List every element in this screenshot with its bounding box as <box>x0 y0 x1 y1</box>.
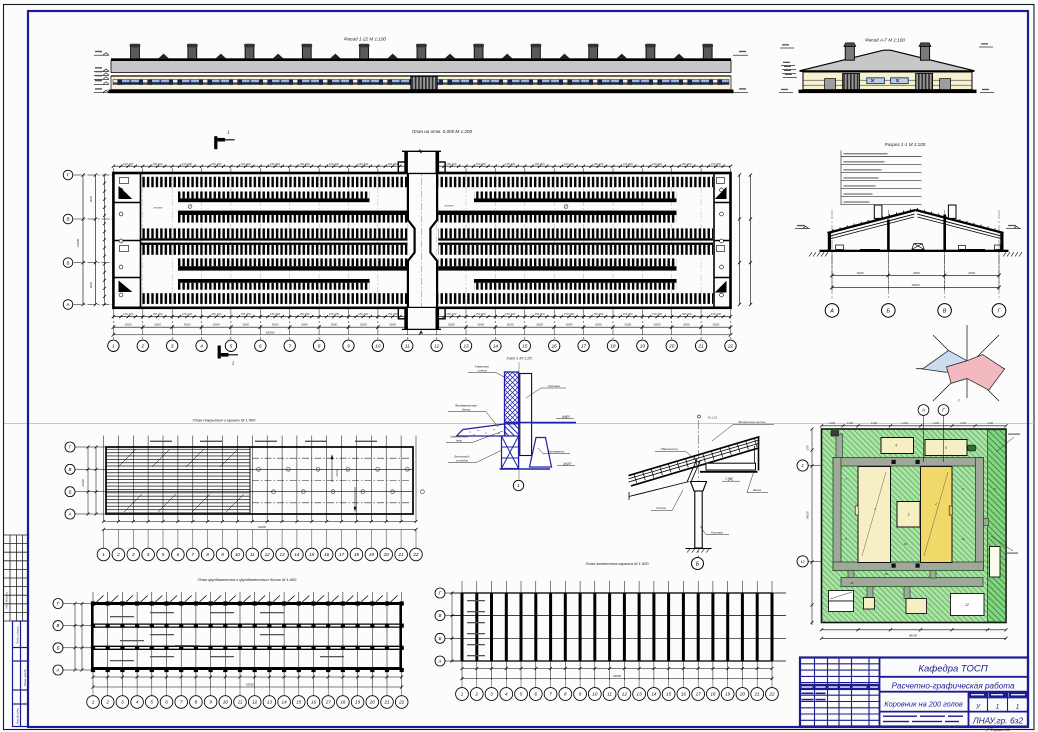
svg-text:13: 13 <box>279 552 285 557</box>
svg-text:3000: 3000 <box>242 323 249 327</box>
svg-text:8: 8 <box>564 692 567 697</box>
svg-text:9: 9 <box>579 692 582 697</box>
svg-text:8: 8 <box>206 552 209 557</box>
svg-text:15: 15 <box>309 552 315 557</box>
svg-text:12: 12 <box>434 343 440 348</box>
svg-text:4: 4 <box>505 692 508 697</box>
svg-text:План элементов каркаса М 1:500: План элементов каркаса М 1:500 <box>585 561 649 566</box>
svg-text:Узел 1 М 1:20: Узел 1 М 1:20 <box>506 356 532 361</box>
svg-text:6: 6 <box>535 692 538 697</box>
svg-text:150 300: 150 300 <box>123 162 134 166</box>
svg-text:5: 5 <box>162 552 165 557</box>
svg-text:19: 19 <box>369 552 375 557</box>
svg-text:4: 4 <box>895 444 897 448</box>
svg-text:16: 16 <box>681 692 687 697</box>
svg-text:14: 14 <box>493 343 499 348</box>
svg-text:10: 10 <box>961 537 965 541</box>
svg-text:Подп. и дата: Подп. и дата <box>16 626 20 644</box>
svg-text:150 300: 150 300 <box>211 162 222 166</box>
svg-text:15: 15 <box>296 700 302 705</box>
svg-text:Инв.№ дубл.: Инв.№ дубл. <box>16 707 20 724</box>
svg-text:63000: 63000 <box>246 682 254 686</box>
svg-text:ЛНАУ,гр. 6з2: ЛНАУ,гр. 6з2 <box>972 716 1024 726</box>
svg-text:63000: 63000 <box>258 525 266 529</box>
svg-text:150 300: 150 300 <box>711 312 722 316</box>
svg-text:150 300: 150 300 <box>593 312 604 316</box>
svg-text:4: 4 <box>200 343 203 348</box>
svg-text:План покрытия и кровли М 1:400: План покрытия и кровли М 1:400 <box>193 418 256 423</box>
svg-text:7: 7 <box>549 692 552 697</box>
svg-text:Б: Б <box>57 645 60 650</box>
svg-text:18: 18 <box>340 700 346 705</box>
svg-text:15: 15 <box>666 692 672 697</box>
svg-text:14: 14 <box>651 692 657 697</box>
svg-text:22: 22 <box>398 700 405 705</box>
svg-text:11: 11 <box>607 692 612 697</box>
svg-text:Инв.№подл.: Инв.№подл. <box>5 591 9 608</box>
svg-text:21000: 21000 <box>76 238 80 248</box>
svg-text:11: 11 <box>250 552 255 557</box>
svg-text:А: А <box>921 408 925 413</box>
svg-text:3: 3 <box>132 552 135 557</box>
svg-text:4: 4 <box>136 700 139 705</box>
svg-text:План фундаментов и фундаментны: План фундаментов и фундаментных балок М … <box>198 577 298 582</box>
svg-text:6: 6 <box>259 343 262 348</box>
svg-text:Фундамент: Фундамент <box>548 450 565 454</box>
svg-text:150 300: 150 300 <box>623 312 634 316</box>
svg-text:1: 1 <box>227 130 229 135</box>
svg-text:22: 22 <box>412 552 419 557</box>
svg-text:19: 19 <box>640 343 646 348</box>
svg-text:11: 11 <box>850 581 853 585</box>
svg-text:150 300: 150 300 <box>241 312 252 316</box>
svg-text:3000: 3000 <box>448 323 455 327</box>
svg-text:150 300: 150 300 <box>593 162 604 166</box>
svg-text:Кафедра ТОСП: Кафедра ТОСП <box>918 664 987 675</box>
svg-text:3000: 3000 <box>712 323 719 327</box>
svg-text:16: 16 <box>311 700 317 705</box>
svg-text:балка: балка <box>753 488 761 492</box>
svg-text:11: 11 <box>405 343 410 348</box>
svg-text:1: 1 <box>112 343 115 348</box>
svg-text:9: 9 <box>209 700 212 705</box>
svg-text:3000: 3000 <box>624 323 631 327</box>
svg-text:9: 9 <box>221 552 224 557</box>
svg-text:А: А <box>829 308 834 314</box>
svg-text:А: А <box>56 668 60 673</box>
svg-text:63000: 63000 <box>266 331 275 335</box>
svg-text:11: 11 <box>238 700 243 705</box>
svg-text:3: 3 <box>121 700 124 705</box>
svg-text:3000: 3000 <box>389 323 396 327</box>
svg-text:150 300: 150 300 <box>152 162 163 166</box>
svg-text:лоток: лоток <box>444 204 454 208</box>
svg-text:150 300: 150 300 <box>299 312 310 316</box>
svg-text:Колонна: Колонна <box>711 531 723 535</box>
svg-text:9: 9 <box>347 343 350 348</box>
svg-text:3000: 3000 <box>125 323 132 327</box>
svg-text:15: 15 <box>522 343 528 348</box>
svg-text:Формат А1: Формат А1 <box>990 728 1010 732</box>
svg-text:10: 10 <box>235 552 241 557</box>
svg-text:98000: 98000 <box>806 511 810 519</box>
svg-text:3000: 3000 <box>301 323 308 327</box>
svg-text:150 300: 150 300 <box>299 162 310 166</box>
svg-text:В: В <box>57 623 60 628</box>
svg-text:6000: 6000 <box>913 271 920 275</box>
svg-text:150 300: 150 300 <box>358 162 369 166</box>
svg-text:1200: 1200 <box>847 421 853 425</box>
svg-text:столбик: столбик <box>456 459 469 463</box>
svg-text:9000: 9000 <box>89 195 93 202</box>
svg-text:17: 17 <box>696 692 702 697</box>
svg-text:Б: Б <box>439 636 442 641</box>
svg-text:6: 6 <box>177 552 180 557</box>
svg-text:пояс: пояс <box>456 439 463 443</box>
svg-text:2: 2 <box>141 343 145 348</box>
svg-text:3: 3 <box>908 513 910 517</box>
svg-text:1200: 1200 <box>987 421 993 425</box>
svg-text:13: 13 <box>884 572 888 576</box>
svg-text:14: 14 <box>903 542 907 546</box>
svg-text:В: В <box>439 613 442 618</box>
svg-text:5: 5 <box>945 446 947 450</box>
svg-text:150 300: 150 300 <box>211 312 222 316</box>
svg-text:150 300: 150 300 <box>329 312 340 316</box>
svg-text:21: 21 <box>383 700 390 705</box>
svg-text:21: 21 <box>754 692 761 697</box>
svg-text:17: 17 <box>581 343 587 348</box>
svg-text:16: 16 <box>552 343 558 348</box>
svg-text:20: 20 <box>369 700 376 705</box>
svg-text:1200: 1200 <box>960 421 966 425</box>
svg-text:150 300: 150 300 <box>623 162 634 166</box>
svg-text:3000: 3000 <box>536 323 543 327</box>
svg-text:150 300: 150 300 <box>505 312 516 316</box>
svg-text:1200: 1200 <box>902 421 908 425</box>
svg-text:9000: 9000 <box>89 281 93 288</box>
svg-text:Коровник на 200 голов: Коровник на 200 голов <box>884 700 963 709</box>
svg-text:18: 18 <box>610 343 616 348</box>
svg-text:150 300: 150 300 <box>388 162 399 166</box>
svg-text:1: 1 <box>92 700 95 705</box>
svg-text:150 300: 150 300 <box>358 312 369 316</box>
svg-text:стена: стена <box>478 369 487 373</box>
svg-text:3: 3 <box>490 692 493 697</box>
svg-text:3000: 3000 <box>183 323 190 327</box>
svg-text:150 300: 150 300 <box>329 162 340 166</box>
svg-text:1: 1 <box>232 361 234 366</box>
svg-text:балка: балка <box>462 408 470 412</box>
svg-text:3000: 3000 <box>507 323 514 327</box>
svg-text:150 300: 150 300 <box>711 162 722 166</box>
svg-text:150 300: 150 300 <box>476 312 487 316</box>
svg-text:150 300: 150 300 <box>534 162 545 166</box>
svg-text:12: 12 <box>252 700 258 705</box>
svg-text:96000: 96000 <box>909 634 918 638</box>
svg-text:22: 22 <box>768 692 775 697</box>
svg-text:2: 2 <box>934 502 937 506</box>
svg-text:20: 20 <box>383 552 390 557</box>
svg-text:3000: 3000 <box>330 323 337 327</box>
svg-text:150 300: 150 300 <box>388 312 399 316</box>
svg-text:10: 10 <box>223 700 229 705</box>
svg-text:6000: 6000 <box>968 271 975 275</box>
svg-text:1200: 1200 <box>871 421 877 425</box>
svg-text:1: 1 <box>1016 704 1020 711</box>
svg-text:2: 2 <box>105 700 109 705</box>
svg-text:Фасад 1-22 М 1:100: Фасад 1-22 М 1:100 <box>344 37 386 42</box>
svg-text:18: 18 <box>710 692 716 697</box>
svg-text:19: 19 <box>355 700 361 705</box>
svg-text:7: 7 <box>180 700 183 705</box>
svg-text:19: 19 <box>725 692 731 697</box>
svg-text:7: 7 <box>288 343 291 348</box>
svg-text:А: А <box>68 512 72 517</box>
svg-text:10: 10 <box>592 692 598 697</box>
svg-text:10: 10 <box>375 343 381 348</box>
svg-text:150 300: 150 300 <box>476 162 487 166</box>
svg-text:Б: Б <box>887 308 891 314</box>
svg-text:20: 20 <box>739 692 746 697</box>
svg-text:20: 20 <box>668 343 675 348</box>
svg-text:3000: 3000 <box>272 323 279 327</box>
svg-text:7: 7 <box>191 552 194 557</box>
svg-text:3000: 3000 <box>213 323 220 327</box>
svg-text:22: 22 <box>727 343 734 348</box>
svg-text:4: 4 <box>147 552 150 557</box>
svg-text:В: В <box>943 308 947 314</box>
svg-text:150 300: 150 300 <box>534 312 545 316</box>
svg-text:6000: 6000 <box>857 271 864 275</box>
svg-text:с: с <box>958 398 960 403</box>
svg-text:17: 17 <box>326 700 332 705</box>
svg-text:3000: 3000 <box>654 323 661 327</box>
svg-text:150 300: 150 300 <box>652 312 663 316</box>
svg-text:18: 18 <box>354 552 360 557</box>
svg-text:2: 2 <box>474 692 478 697</box>
svg-text:Взам. инв.№: Взам. инв.№ <box>23 669 27 686</box>
svg-text:13: 13 <box>637 692 643 697</box>
svg-text:150 300: 150 300 <box>505 162 516 166</box>
svg-text:21: 21 <box>698 343 705 348</box>
svg-text:150 300: 150 300 <box>564 312 575 316</box>
svg-text:1: 1 <box>461 692 464 697</box>
svg-text:3000: 3000 <box>565 323 572 327</box>
svg-text:3000: 3000 <box>477 323 484 327</box>
svg-text:М 1:10: М 1:10 <box>708 415 718 419</box>
svg-text:1200: 1200 <box>933 421 939 425</box>
svg-text:Плита: Плита <box>656 506 666 510</box>
svg-text:2: 2 <box>116 552 120 557</box>
svg-text:План на отм. 0.000 М 1:200: План на отм. 0.000 М 1:200 <box>412 129 472 134</box>
svg-text:3000: 3000 <box>360 323 367 327</box>
svg-text:Обрешетка: Обрешетка <box>660 447 677 451</box>
svg-text:12: 12 <box>622 692 628 697</box>
svg-text:В: В <box>66 217 69 222</box>
svg-text:21000: 21000 <box>335 469 339 478</box>
svg-text:1: 1 <box>102 552 105 557</box>
svg-text:150 300: 150 300 <box>241 162 252 166</box>
svg-text:13: 13 <box>267 700 273 705</box>
svg-text:5: 5 <box>520 692 523 697</box>
svg-text:150 300: 150 300 <box>446 312 457 316</box>
svg-text:16: 16 <box>324 552 330 557</box>
svg-text:150 300: 150 300 <box>270 162 281 166</box>
svg-text:5: 5 <box>151 700 154 705</box>
svg-text:14: 14 <box>294 552 300 557</box>
svg-text:Колонна: Колонна <box>548 384 560 388</box>
svg-text:лоток: лоток <box>153 206 163 210</box>
svg-text:5: 5 <box>230 343 233 348</box>
svg-text:13: 13 <box>463 343 469 348</box>
svg-text:150 300: 150 300 <box>123 312 134 316</box>
svg-text:21: 21 <box>398 552 405 557</box>
svg-text:150 300: 150 300 <box>446 162 457 166</box>
svg-text:1: 1 <box>996 704 1000 711</box>
svg-text:12: 12 <box>965 603 969 607</box>
svg-text:Б: Б <box>69 489 72 494</box>
svg-text:63000: 63000 <box>613 674 621 678</box>
svg-text:Фасад А-Г М 1:100: Фасад А-Г М 1:100 <box>865 38 905 43</box>
svg-text:21000: 21000 <box>81 479 85 488</box>
svg-text:150 300: 150 300 <box>182 312 193 316</box>
svg-text:17: 17 <box>339 552 345 557</box>
svg-text:150 300: 150 300 <box>652 162 663 166</box>
svg-text:150 300: 150 300 <box>681 312 692 316</box>
svg-text:12: 12 <box>265 552 271 557</box>
svg-text:150 300: 150 300 <box>681 162 692 166</box>
svg-text:150 300: 150 300 <box>564 162 575 166</box>
svg-text:В: В <box>69 467 72 472</box>
svg-text:3: 3 <box>171 343 174 348</box>
svg-text:Б: Б <box>67 260 70 265</box>
svg-text:Разрез 1-1 М 1:100: Разрез 1-1 М 1:100 <box>885 142 926 147</box>
svg-text:18000: 18000 <box>911 283 920 287</box>
svg-text:Расчетно-графическая работа: Расчетно-графическая работа <box>891 681 1015 690</box>
svg-text:3000: 3000 <box>595 323 602 327</box>
svg-text:1200: 1200 <box>807 445 810 451</box>
svg-text:1200: 1200 <box>829 421 835 425</box>
svg-text:3000: 3000 <box>683 323 690 327</box>
svg-text:Волнистые листы: Волнистые листы <box>739 420 767 424</box>
svg-text:150 300: 150 300 <box>152 312 163 316</box>
svg-text:3000: 3000 <box>154 323 161 327</box>
svg-text:А: А <box>65 302 69 307</box>
svg-text:8: 8 <box>195 700 198 705</box>
svg-text:150 300: 150 300 <box>270 312 281 316</box>
svg-text:А: А <box>438 659 442 664</box>
svg-text:8: 8 <box>318 343 321 348</box>
svg-text:150 300: 150 300 <box>182 162 193 166</box>
svg-text:14: 14 <box>282 700 288 705</box>
svg-text:6: 6 <box>165 700 168 705</box>
